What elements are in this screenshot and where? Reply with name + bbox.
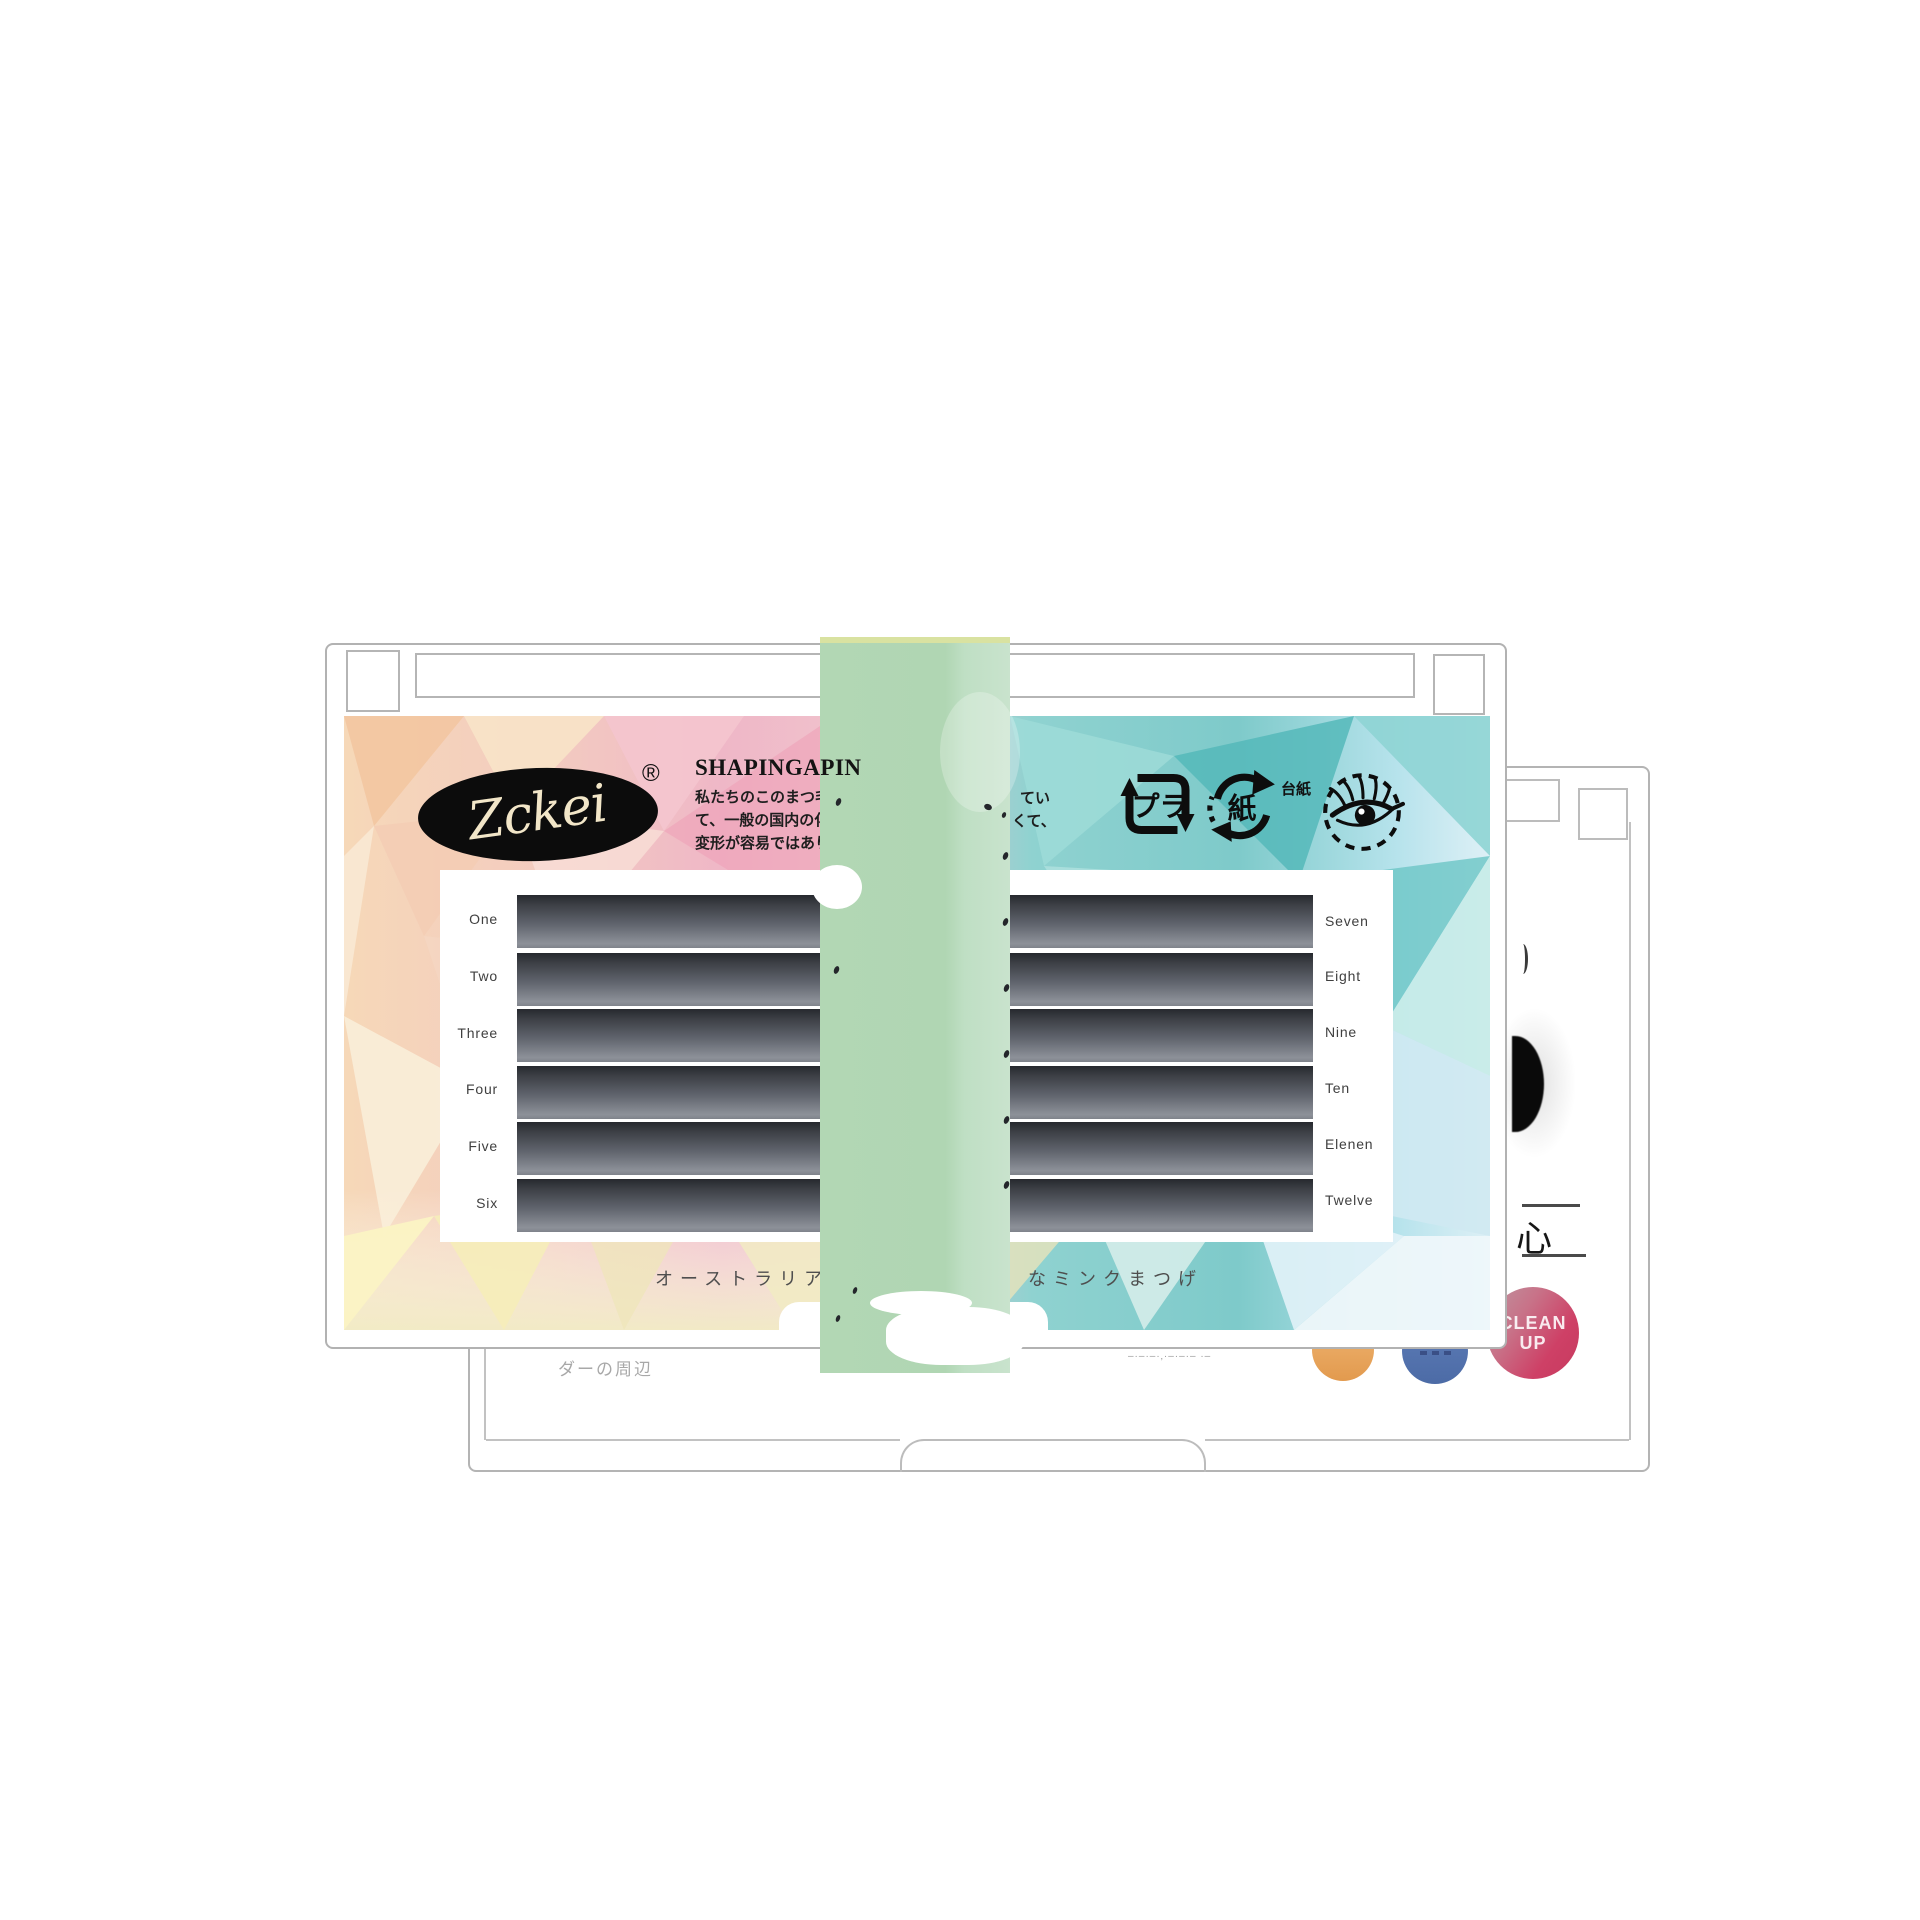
lash-strip-7 — [1008, 895, 1313, 948]
row-label-elenen: Elenen — [1325, 1136, 1425, 1156]
product-photo: 心 CLEAN UP ダーの周辺 –·–·–·‚·–·–·– ·– — [0, 0, 1920, 1920]
svg-text:紙: 紙 — [1228, 792, 1257, 825]
description-line-2: て、一般の国内の化 — [695, 809, 824, 830]
lash-strip-3 — [517, 1009, 822, 1062]
description-line-3: 変形が容易ではあり — [695, 832, 824, 853]
lash-strip-2 — [517, 953, 822, 1006]
brand-logo-text: Zckei — [465, 773, 611, 852]
band-highlight — [940, 692, 1020, 812]
row-label-four: Four — [398, 1081, 498, 1101]
footer-caption-right: なミンクまつげ — [1028, 1265, 1203, 1291]
registered-trademark: ® — [642, 760, 660, 788]
svg-text:プラ: プラ — [1131, 791, 1187, 822]
clean-up-line1: CLEAN — [1500, 1313, 1567, 1333]
lash-strip-10 — [1008, 1066, 1313, 1119]
front-tray-notch-right — [1433, 654, 1485, 715]
band-white-blob — [812, 865, 862, 909]
eye-lash-icon — [1318, 764, 1406, 854]
row-label-seven: Seven — [1325, 913, 1425, 933]
description-fragment-2: くて、 — [1012, 810, 1056, 831]
paper-recycling-icon: 紙 — [1203, 768, 1281, 846]
lash-strip-5 — [517, 1122, 822, 1175]
lash-strip-1 — [517, 895, 822, 948]
lash-strip-12 — [1008, 1179, 1313, 1232]
description-fragment-1: てい — [1020, 787, 1050, 808]
plastic-recycling-icon: プラ — [1115, 766, 1200, 842]
back-caption-small: –·–·–·‚·–·–·– ·– — [1128, 1351, 1211, 1362]
row-label-eight: Eight — [1325, 968, 1425, 988]
blue-dot-text-fragment — [1420, 1351, 1427, 1355]
lash-strip-8 — [1008, 953, 1313, 1006]
back-inner-line-right — [1629, 822, 1631, 1440]
footer-caption-left: オーストラリア — [655, 1265, 829, 1291]
row-label-ten: Ten — [1325, 1080, 1425, 1100]
back-caption-left: ダーの周辺 — [558, 1355, 653, 1380]
green-paper-band — [820, 637, 1010, 1373]
back-inner-line-bottom-1 — [486, 1439, 900, 1441]
row-label-three: Three — [398, 1025, 498, 1045]
back-inner-line-bottom-2 — [1205, 1439, 1629, 1441]
lash-curl-mark — [1518, 944, 1528, 974]
band-white-blob — [886, 1307, 1024, 1365]
clean-up-line2: UP — [1519, 1333, 1546, 1353]
package-title: SHAPINGAPIN — [695, 755, 870, 783]
front-tray-notch-left — [346, 650, 400, 712]
description-line-1: 私たちのこのまつ毛 — [695, 786, 824, 807]
rule-above-heart — [1522, 1204, 1580, 1207]
row-label-six: Six — [398, 1195, 498, 1215]
rule-below-heart — [1522, 1254, 1586, 1257]
daishi-label: 台紙 — [1281, 778, 1311, 799]
lash-strip-6 — [517, 1179, 822, 1232]
back-tray-notch — [1578, 788, 1628, 840]
blue-dot-text-fragment — [1432, 1351, 1439, 1355]
lash-strip-11 — [1008, 1122, 1313, 1175]
row-label-one: One — [398, 911, 498, 931]
row-label-five: Five — [398, 1138, 498, 1158]
row-label-nine: Nine — [1325, 1024, 1425, 1044]
band-top-edge — [820, 637, 1010, 643]
lash-strip-9 — [1008, 1009, 1313, 1062]
row-label-two: Two — [398, 968, 498, 988]
lash-strip-4 — [517, 1066, 822, 1119]
row-label-twelve: Twelve — [1325, 1192, 1425, 1212]
blue-dot-text-fragment — [1444, 1351, 1451, 1355]
back-tray-tab — [900, 1439, 1206, 1472]
